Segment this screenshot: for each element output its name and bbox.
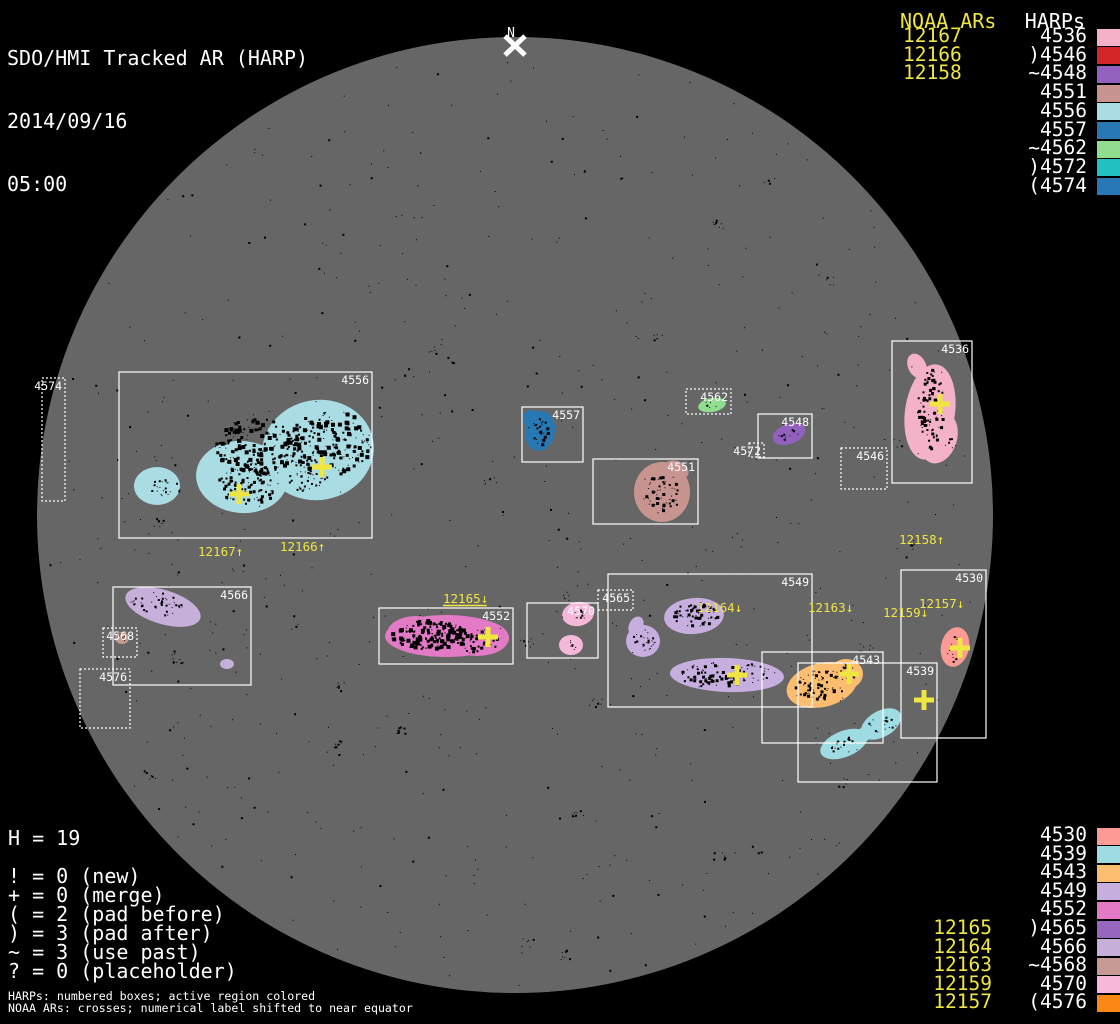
harp-box-label-4570: 4570 — [567, 604, 595, 618]
harp-tracker-screen: { "header": { "title": "SDO/HMI Tracked … — [0, 0, 1120, 1024]
harp-box-label-4546: 4546 — [856, 449, 884, 463]
harp-color-swatch-4565 — [1097, 921, 1120, 938]
footnote-noaa: NOAA ARs: crosses; numerical label shift… — [8, 1002, 413, 1014]
harp-color-swatch-4546 — [1097, 47, 1120, 64]
harp-box-label-4572: 4572 — [733, 444, 761, 458]
harp-box-label-4556: 4556 — [341, 373, 369, 387]
noaa-label-12158: 12158↑ — [899, 532, 944, 547]
legend-line: ? = 0 (placeholder) — [8, 962, 237, 981]
title-block: SDO/HMI Tracked AR (HARP) 2014/09/16 05:… — [7, 6, 308, 216]
active-region-blob — [134, 467, 180, 505]
harp-box-label-4536: 4536 — [941, 342, 969, 356]
active-region-blob — [220, 659, 234, 669]
date-label: 2014/09/16 — [7, 111, 308, 132]
harp-box-label-4548: 4548 — [781, 415, 809, 429]
harp-box-label-4562: 4562 — [700, 390, 728, 404]
harp-box-label-4576: 4576 — [99, 670, 127, 684]
noaa-label-12163: 12163↓ — [808, 600, 853, 615]
noaa-label-12157: 12157↓ — [919, 596, 964, 611]
harp-color-swatch-4543 — [1097, 865, 1120, 882]
harp-box-label-4551: 4551 — [667, 460, 695, 474]
harp-color-swatch-4539 — [1097, 846, 1120, 863]
active-region-blob — [199, 478, 227, 496]
harp-color-swatch-4566 — [1097, 939, 1120, 956]
harp-count-label: H = 19 — [8, 829, 80, 848]
harp-number-4576: (4576 — [990, 993, 1087, 1011]
active-region-blob — [127, 588, 153, 610]
harp-color-swatch-4572 — [1097, 159, 1120, 176]
active-region-blob — [523, 410, 541, 428]
harp-box-label-4530: 4530 — [955, 571, 983, 585]
harp-box-label-4568: 4568 — [106, 629, 134, 643]
harp-color-swatch-4548 — [1097, 66, 1120, 83]
harp-color-swatch-4556 — [1097, 103, 1120, 120]
harp-box-label-4543: 4543 — [852, 653, 880, 667]
active-region-blob — [559, 635, 583, 655]
harp-box-label-4565: 4565 — [602, 591, 630, 605]
harp-color-swatch-4568 — [1097, 958, 1120, 975]
harp-box-label-4549: 4549 — [781, 575, 809, 589]
harp-color-swatch-4530 — [1097, 828, 1120, 845]
noaa-label-12166: 12166↑ — [280, 539, 325, 554]
page-title: SDO/HMI Tracked AR (HARP) — [7, 48, 308, 69]
harp-color-swatch-4557 — [1097, 122, 1120, 139]
time-label: 05:00 — [7, 174, 308, 195]
harp-color-swatch-4536 — [1097, 29, 1120, 46]
harp-color-swatch-4552 — [1097, 902, 1120, 919]
harp-color-swatch-4551 — [1097, 85, 1120, 102]
harp-color-swatch-4574 — [1097, 178, 1120, 195]
noaa-number-12158: 12158 — [903, 64, 962, 82]
noaa-label-12167: 12167↑ — [198, 544, 243, 559]
harp-number-4574: (4574 — [990, 177, 1087, 195]
harp-box-label-4574: 4574 — [34, 379, 62, 393]
harp-box-label-4552: 4552 — [482, 609, 510, 623]
harp-color-swatch-4549 — [1097, 883, 1120, 900]
harp-color-swatch-4570 — [1097, 976, 1120, 993]
harp-box-label-4539: 4539 — [906, 664, 934, 678]
harp-box-label-4557: 4557 — [552, 408, 580, 422]
noaa-label-12164: 12164↓ — [697, 600, 742, 615]
harp-color-swatch-4576 — [1097, 995, 1120, 1012]
noaa-number-12157: 12157 — [900, 993, 992, 1011]
harp-box-label-4566: 4566 — [220, 588, 248, 602]
harp-color-swatch-4562 — [1097, 141, 1120, 158]
noaa-label-12165: 12165↓ — [443, 591, 488, 606]
